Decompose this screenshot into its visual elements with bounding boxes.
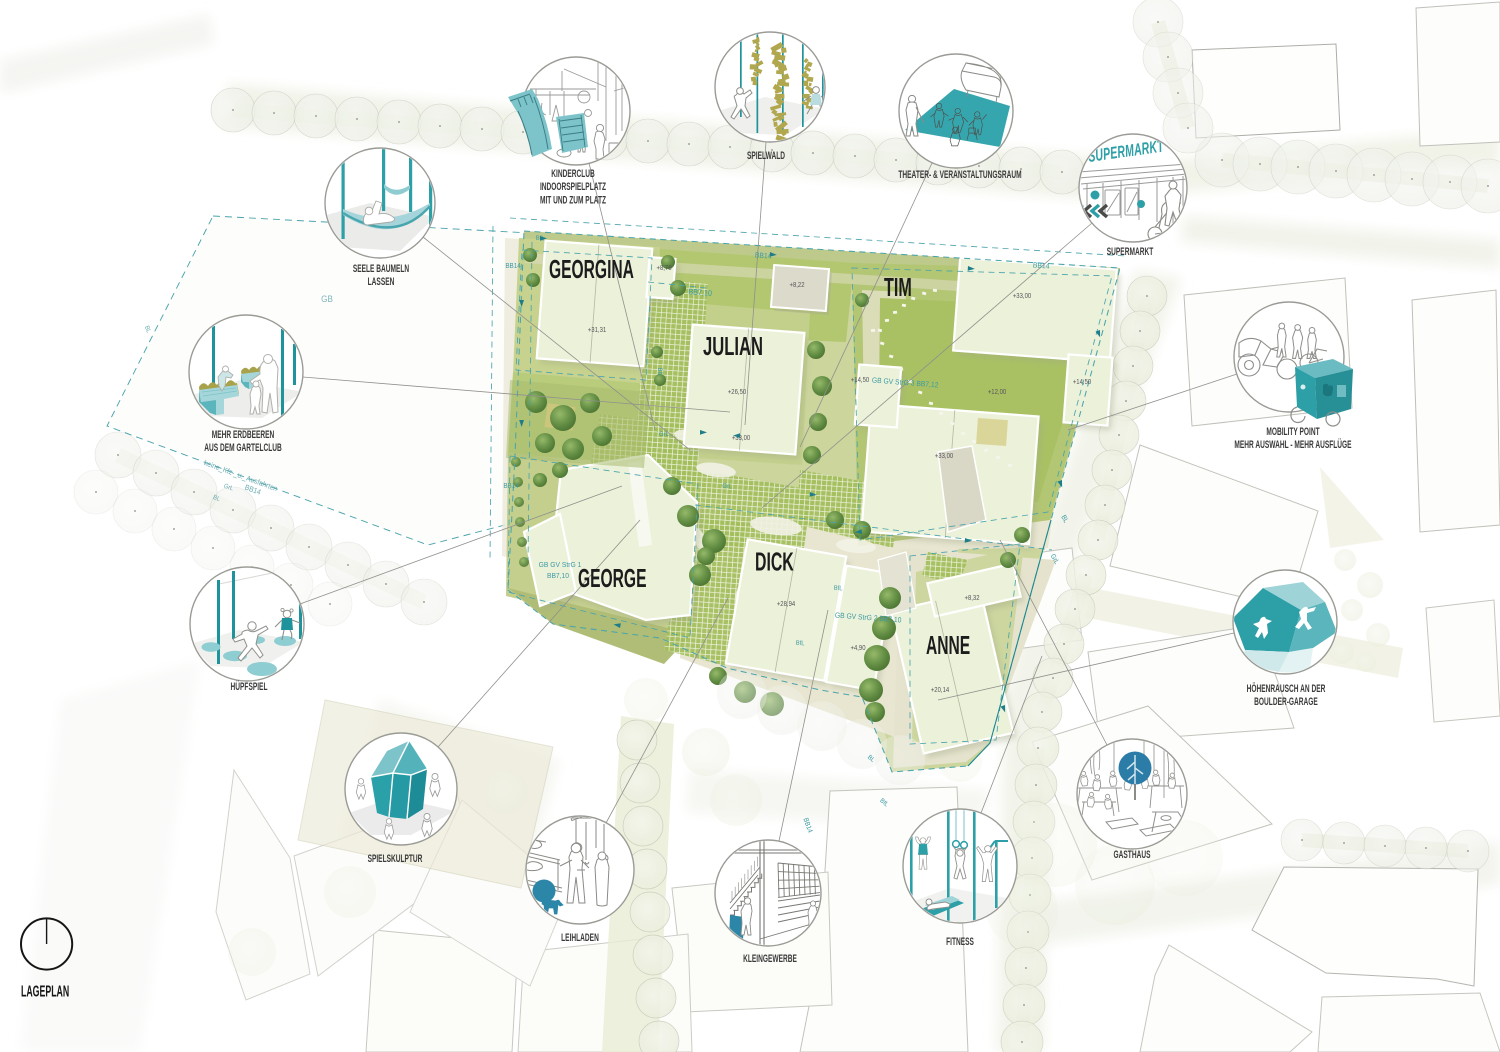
- svg-text:GEORGINA: GEORGINA: [549, 255, 634, 284]
- svg-text:+8,32: +8,32: [964, 595, 979, 603]
- svg-text:BOULDER-GARAGE: BOULDER-GARAGE: [1254, 696, 1318, 708]
- svg-text:MOBILITY POINT: MOBILITY POINT: [1266, 425, 1320, 437]
- svg-text:LEIHLADEN: LEIHLADEN: [561, 931, 599, 943]
- svg-text:+14,50: +14,50: [851, 377, 870, 385]
- svg-text:DICK: DICK: [755, 548, 794, 577]
- svg-text:GrL: GrL: [659, 431, 669, 438]
- svg-text:THEATER- & VERANSTALTUNGSRAUM: THEATER- & VERANSTALTUNGSRAUM: [898, 168, 1021, 180]
- svg-text:+33,00: +33,00: [1013, 293, 1032, 301]
- svg-text:+4,90: +4,90: [850, 645, 865, 653]
- svg-text:MEHR AUSWAHL - MEHR AUSFLÜGE: MEHR AUSWAHL - MEHR AUSFLÜGE: [1234, 439, 1351, 451]
- svg-text:SPIELWALD: SPIELWALD: [747, 149, 785, 161]
- svg-text:LASSEN: LASSEN: [368, 276, 395, 288]
- svg-text:FITNESS: FITNESS: [946, 935, 974, 947]
- svg-text:+26,50: +26,50: [728, 389, 747, 397]
- svg-text:BB7,10: BB7,10: [547, 572, 569, 580]
- svg-text:MIT UND ZUM PLATZ: MIT UND ZUM PLATZ: [540, 194, 606, 206]
- svg-text:+20,14: +20,14: [931, 687, 950, 695]
- svg-text:GB: GB: [321, 294, 333, 305]
- svg-text:KINDERCLUB: KINDERCLUB: [551, 167, 595, 179]
- svg-text:SPIELSKULPTUR: SPIELSKULPTUR: [368, 852, 423, 864]
- svg-text:+28,94: +28,94: [777, 601, 796, 609]
- svg-text:BB14: BB14: [1033, 261, 1050, 271]
- svg-text:BB7,10: BB7,10: [688, 287, 712, 298]
- svg-text:HÜPFSPIEL: HÜPFSPIEL: [231, 680, 268, 692]
- svg-text:KLEINGEWERBE: KLEINGEWERBE: [743, 952, 797, 964]
- svg-text:GrL: GrL: [722, 482, 733, 490]
- svg-text:AUS DEM GARTELCLUB: AUS DEM GARTELCLUB: [204, 442, 282, 454]
- svg-text:GB GV StrG 1: GB GV StrG 1: [539, 561, 582, 569]
- svg-text:+33,00: +33,00: [935, 453, 954, 461]
- svg-text:HÖHENRAUSCH AN DER: HÖHENRAUSCH AN DER: [1247, 682, 1326, 694]
- svg-text:+8,22: +8,22: [789, 282, 804, 290]
- svg-text:+31,31: +31,31: [588, 327, 607, 335]
- svg-text:BfL: BfL: [656, 368, 663, 377]
- svg-text:BB14: BB14: [503, 483, 519, 490]
- svg-text:JULIAN: JULIAN: [703, 331, 763, 361]
- svg-text:LAGEPLAN: LAGEPLAN: [21, 983, 69, 1000]
- svg-text:SEELE BAUMELN: SEELE BAUMELN: [353, 262, 409, 274]
- svg-text:BB14: BB14: [505, 263, 521, 270]
- svg-text:BB14: BB14: [755, 251, 772, 261]
- svg-text:+12,00: +12,00: [988, 389, 1007, 397]
- svg-text:GEORGE: GEORGE: [578, 564, 646, 593]
- svg-text:GASTHAUS: GASTHAUS: [1114, 848, 1151, 860]
- svg-text:ANNE: ANNE: [926, 631, 970, 660]
- svg-text:+8,78: +8,78: [656, 265, 671, 273]
- svg-text:TIM: TIM: [884, 272, 912, 302]
- svg-text:INDOORSPIELPLATZ: INDOORSPIELPLATZ: [540, 181, 606, 193]
- svg-text:BfL: BfL: [795, 639, 805, 647]
- svg-text:MEHR ERDBEEREN: MEHR ERDBEEREN: [212, 428, 275, 440]
- svg-text:BfL: BfL: [833, 584, 843, 592]
- svg-text:+14,50: +14,50: [1073, 379, 1092, 387]
- svg-text:SUPERMARKT: SUPERMARKT: [1107, 245, 1154, 257]
